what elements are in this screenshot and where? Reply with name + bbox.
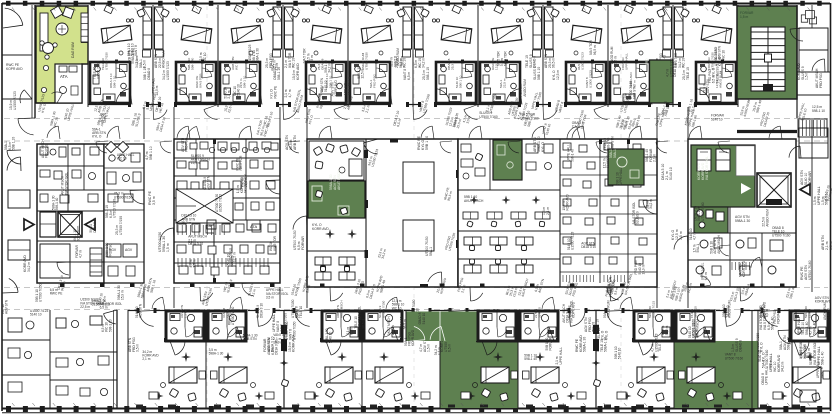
svg-text:FRD: FRD xyxy=(645,58,649,65)
svg-text:598-1 105140 10: 598-1 105140 10 xyxy=(722,304,730,317)
svg-text:AGV STND81A 3 10: AGV STND81A 3 10 xyxy=(581,241,596,249)
svg-text:ATA: ATA xyxy=(60,74,68,79)
svg-text:2,1 m4,7 m: 2,1 m4,7 m xyxy=(284,89,292,97)
svg-text:5140 1059B 1 10: 5140 1059B 1 10 xyxy=(455,75,463,88)
svg-text:4,7 m3,5 m: 4,7 m3,5 m xyxy=(189,259,197,267)
svg-text:SLUSS 9D81A 3 10: SLUSS 9D81A 3 10 xyxy=(256,303,264,318)
svg-text:TELE 10SLUSS 9OBAD 8: TELE 10SLUSS 9OBAD 8 xyxy=(525,54,537,68)
svg-text:ANGO RUMUT500 7/150: ANGO RUMUT500 7/150 xyxy=(361,52,369,70)
svg-text:TELE 10598-1 40ARB STN: TELE 10598-1 40ARB STN xyxy=(603,136,614,151)
svg-text:FRD PSGFORVAR: FRD PSGFORVAR xyxy=(773,309,781,324)
svg-text:598A-1 30FRD PSG: 598A-1 30FRD PSG xyxy=(105,242,113,257)
svg-text:598-1 10598-1 40: 598-1 10598-1 40 xyxy=(187,58,195,70)
svg-text:AGV: AGV xyxy=(125,248,133,252)
svg-text:96,5 m34,2 m: 96,5 m34,2 m xyxy=(661,325,669,335)
svg-text:59B 1 10OBAD 8: 59B 1 10OBAD 8 xyxy=(143,67,151,80)
svg-text:UT500 7/150U1500 7/123: UT500 7/150U1500 7/123 xyxy=(215,194,223,213)
svg-text:12,5 mVANT 8: 12,5 mVANT 8 xyxy=(390,56,398,67)
svg-text:IVA 5 TORKORR AVD: IVA 5 TORKORR AVD xyxy=(738,260,746,277)
svg-text:59B 1 10FORVAR: 59B 1 10FORVAR xyxy=(545,337,553,351)
svg-text:59B 1 10598-1 40: 59B 1 10598-1 40 xyxy=(524,353,537,361)
svg-text:KYL O12,5 m: KYL O12,5 m xyxy=(552,70,560,80)
svg-text:AGV STNFRD PSG: AGV STNFRD PSG xyxy=(181,137,189,152)
svg-text:SLUSS 9AGV STN: SLUSS 9AGV STN xyxy=(203,175,211,190)
svg-text:598A-1 30ARB STN: 598A-1 30ARB STN xyxy=(243,333,258,341)
svg-text:A: A xyxy=(209,223,212,228)
svg-text:OBAD 85140 10: OBAD 85140 10 xyxy=(418,312,426,324)
svg-text:AGV STN598A-1 30: AGV STN598A-1 30 xyxy=(735,215,750,223)
svg-text:1,5 m59A-1: 1,5 m59A-1 xyxy=(692,244,700,253)
svg-text:1,5 m2,1 m: 1,5 m2,1 m xyxy=(542,207,550,215)
svg-text:SLUSS 959B 1 10: SLUSS 959B 1 10 xyxy=(533,66,541,80)
svg-text:2,1 m6,5 m: 2,1 m6,5 m xyxy=(346,326,354,334)
svg-text:DAG RUM: DAG RUM xyxy=(71,42,75,58)
svg-text:12,5 mWC 10: 12,5 mWC 10 xyxy=(199,52,207,62)
svg-text:WC 1096,5 m: WC 1096,5 m xyxy=(241,177,249,187)
svg-text:59B 1 105140 10: 59B 1 105140 10 xyxy=(614,346,622,359)
svg-text:ATA: ATA xyxy=(250,224,258,229)
